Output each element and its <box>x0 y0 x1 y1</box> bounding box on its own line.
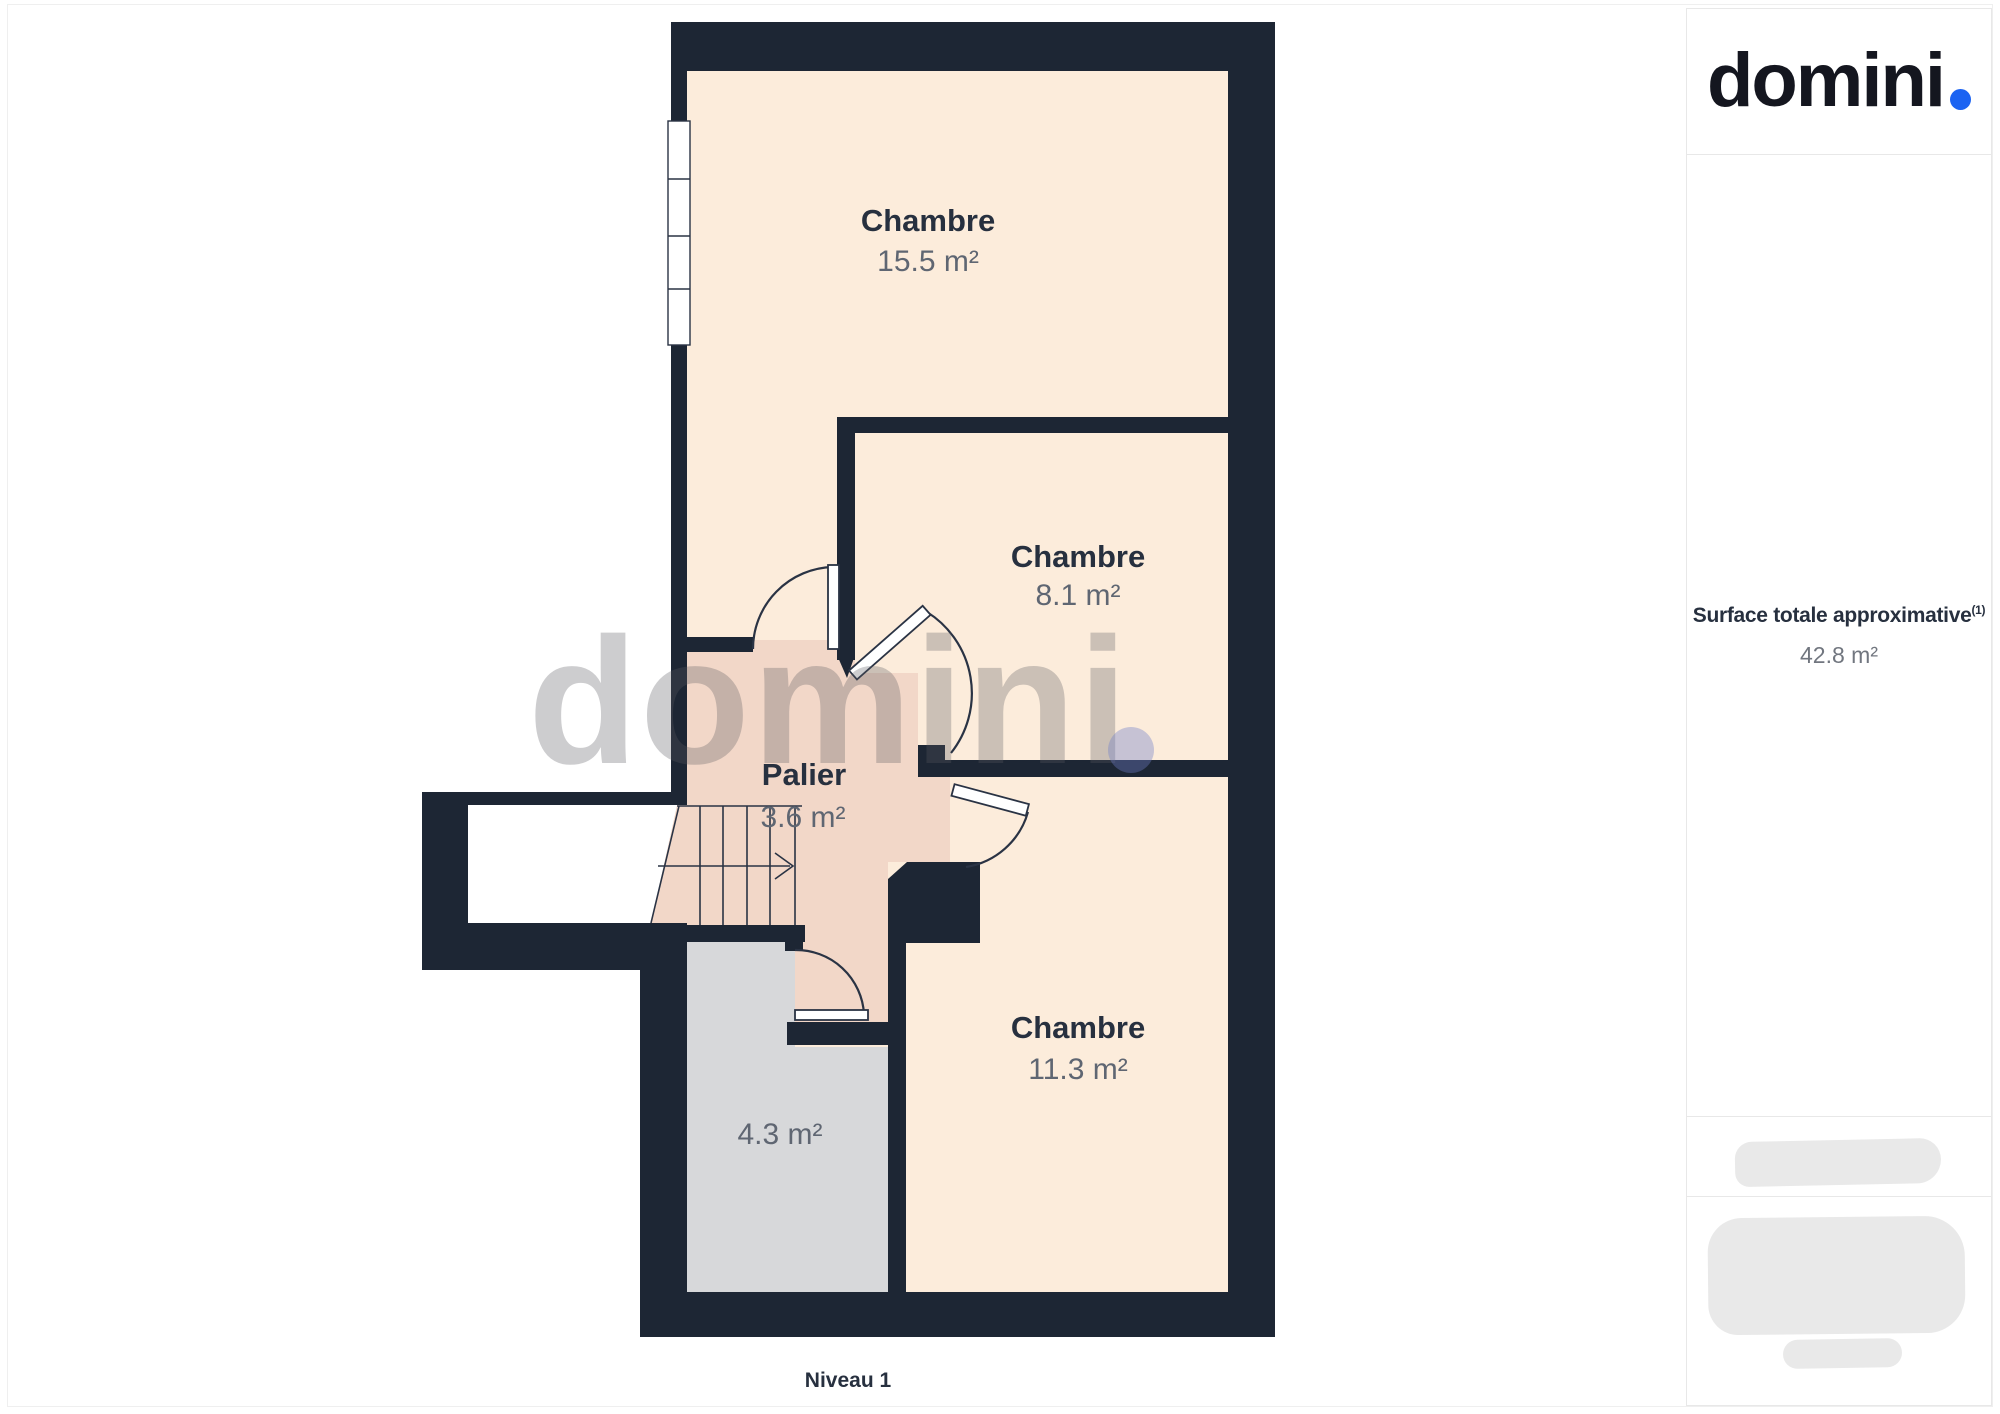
surface-value: 42.8 m² <box>1800 642 1878 669</box>
room3-name: Chambre <box>1011 1010 1145 1046</box>
room1-name: Chambre <box>861 203 995 239</box>
room3-area: 11.3 m² <box>1028 1053 1127 1087</box>
room2-area: 8.1 m² <box>1035 579 1120 613</box>
wall-room2-top <box>837 417 1228 433</box>
window-left <box>668 121 690 345</box>
storage-area: 4.3 m² <box>737 1118 822 1152</box>
level-label: Niveau 1 <box>805 1369 891 1393</box>
sidebar: domini Surface totale approximative(1) 4… <box>1686 8 1992 1406</box>
redacted-section-1 <box>1687 1117 1991 1197</box>
wall-grayroom-right <box>888 943 906 1292</box>
surface-box: Surface totale approximative(1) 42.8 m² <box>1687 155 1991 1117</box>
wall-left-upper <box>671 22 687 123</box>
wall-top <box>671 22 1275 71</box>
palier-name: Palier <box>762 757 846 793</box>
logo-text: domini <box>1707 47 1944 115</box>
floorplan-page: { "brand": { "logo_text": "domini", "acc… <box>0 0 2000 1414</box>
wall-block <box>888 862 980 943</box>
room2-name: Chambre <box>1011 539 1145 575</box>
wall-right <box>1228 22 1275 1337</box>
logo-dot-icon <box>1950 89 1971 110</box>
wall-bottom <box>640 1292 1275 1337</box>
surface-label: Surface totale approximative(1) <box>1693 603 1985 628</box>
redacted-blob <box>1735 1138 1942 1187</box>
brand-logo: domini <box>1707 47 1971 115</box>
logo-box: domini <box>1687 9 1991 155</box>
redacted-blob <box>1783 1338 1902 1369</box>
room1-area: 15.5 m² <box>877 245 979 279</box>
balcony-wall-bottom <box>422 923 687 970</box>
wall-under-door <box>787 1022 888 1045</box>
redacted-section-2 <box>1687 1197 1991 1405</box>
wall-left-lower <box>640 970 687 1337</box>
wall-grayroom-top <box>687 925 805 942</box>
surface-footnote-marker: (1) <box>1971 603 1985 617</box>
watermark-dot-icon <box>1108 727 1154 773</box>
palier-area: 3.6 m² <box>760 801 845 835</box>
redacted-blob <box>1707 1216 1965 1336</box>
